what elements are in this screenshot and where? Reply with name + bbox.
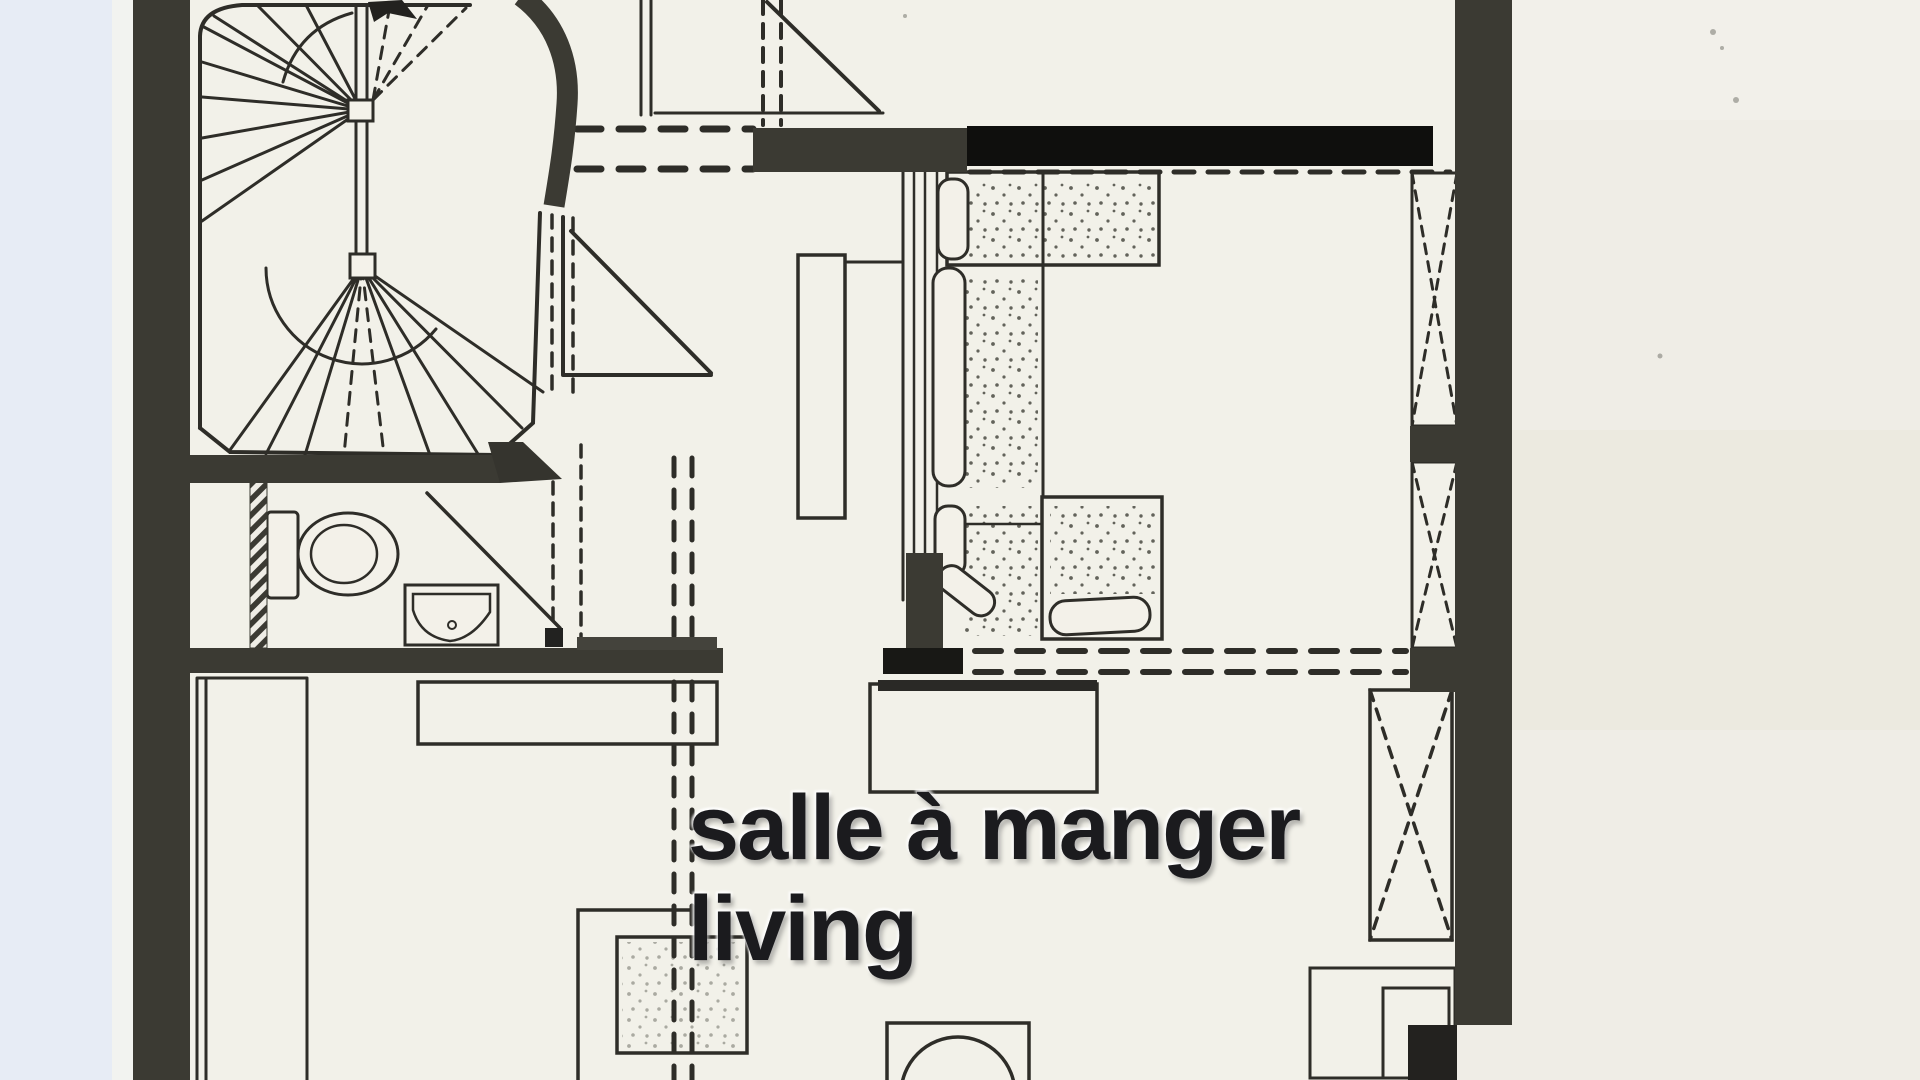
newel-post-lower (350, 254, 375, 278)
hatched-plumbing-wall (250, 480, 267, 648)
wall-left (133, 0, 190, 1080)
newel-post-upper (348, 100, 373, 121)
label-living: living (688, 879, 1299, 980)
label-dining: salle à manger (688, 778, 1299, 879)
room-labels: salle à manger living (688, 778, 1299, 980)
wall-top-gray (753, 128, 967, 172)
pillow (933, 268, 965, 486)
wall-stair-bottom (133, 455, 500, 483)
pillow (1049, 596, 1151, 635)
pillow (938, 179, 968, 259)
wall-partition-solid (906, 553, 943, 651)
wall-wc-bottom (133, 648, 723, 673)
wall-top-black (967, 126, 1433, 166)
toilet-tank (267, 512, 298, 598)
wall-right-stub (1408, 1025, 1457, 1080)
wall-right (1455, 0, 1512, 1025)
radiator (577, 637, 717, 650)
scanned-floorplan-page: salle à manger living (0, 0, 1920, 1080)
